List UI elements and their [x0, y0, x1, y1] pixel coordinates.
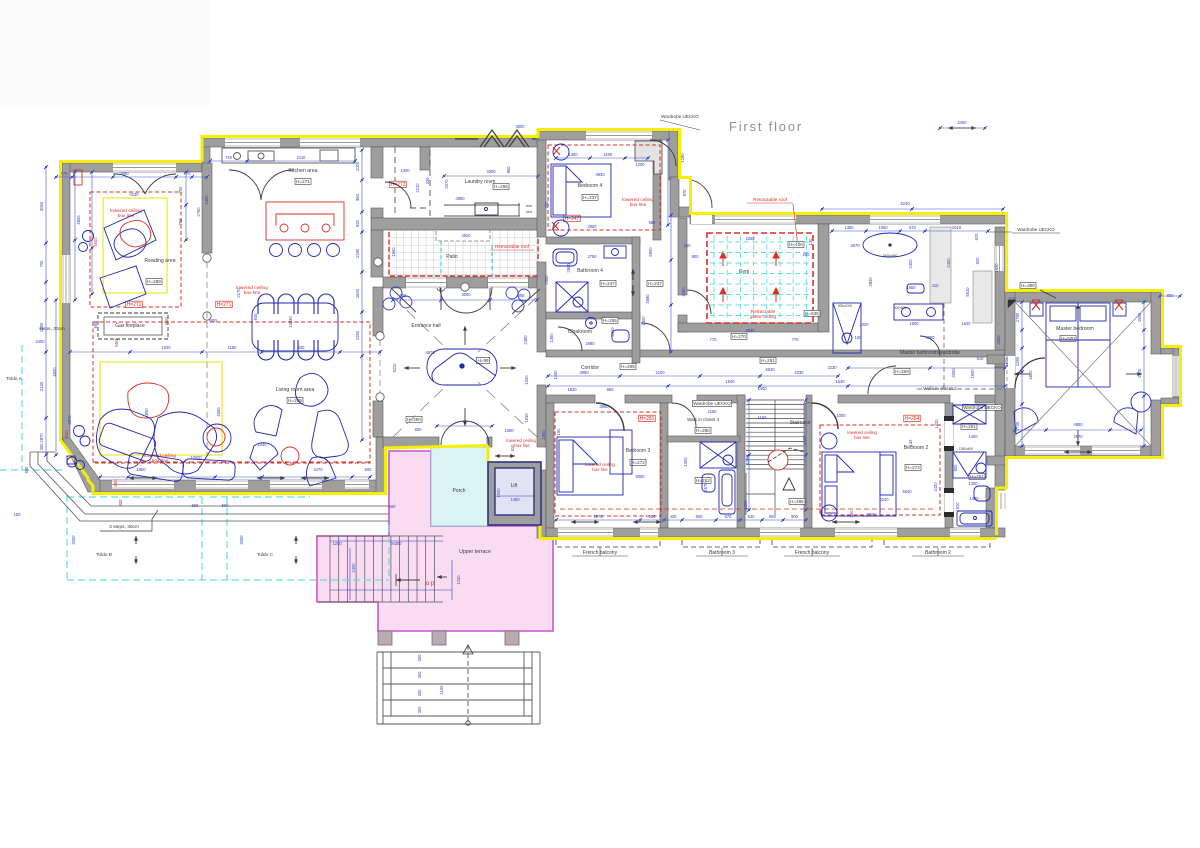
svg-text:box line: box line	[244, 290, 261, 296]
svg-text:3000: 3000	[71, 535, 76, 545]
svg-text:4000: 4000	[681, 287, 686, 297]
svg-text:H=95: H=95	[477, 358, 489, 363]
svg-text:900: 900	[696, 514, 704, 519]
svg-text:box line: box line	[152, 458, 169, 464]
svg-text:3000: 3000	[866, 512, 876, 517]
svg-text:1300: 1300	[400, 168, 410, 173]
svg-text:H=237: H=237	[583, 195, 597, 200]
svg-text:4540: 4540	[745, 328, 755, 333]
svg-text:2020: 2020	[859, 322, 869, 327]
svg-text:670: 670	[909, 225, 917, 230]
svg-text:2010: 2010	[952, 225, 962, 230]
svg-text:2070: 2070	[444, 179, 449, 189]
svg-text:1380: 1380	[39, 322, 44, 332]
svg-text:1600: 1600	[541, 430, 546, 440]
svg-text:640: 640	[748, 514, 756, 519]
svg-text:900: 900	[209, 318, 217, 323]
svg-text:1060: 1060	[878, 225, 888, 230]
svg-text:1350: 1350	[844, 225, 854, 230]
svg-text:H=271: H=271	[296, 179, 310, 184]
svg-text:1400: 1400	[641, 316, 646, 326]
svg-text:1000: 1000	[504, 428, 514, 433]
svg-text:H=400: H=400	[789, 242, 803, 247]
svg-text:1480: 1480	[603, 152, 613, 157]
svg-text:4550: 4550	[216, 407, 221, 417]
svg-text:4920: 4920	[461, 233, 471, 238]
svg-text:1460: 1460	[553, 370, 558, 380]
svg-text:3930: 3930	[595, 172, 605, 177]
svg-text:660: 660	[93, 321, 98, 329]
svg-text:4230: 4230	[129, 192, 139, 197]
svg-text:1350x400: 1350x400	[959, 447, 973, 451]
svg-text:Toldo C: Toldo C	[257, 552, 274, 558]
svg-text:H=270: H=270	[732, 334, 746, 339]
svg-text:1840: 1840	[355, 288, 360, 298]
svg-text:1500: 1500	[1004, 357, 1009, 367]
svg-text:H=289: H=289	[147, 279, 161, 284]
svg-text:1000: 1000	[743, 500, 748, 510]
svg-text:10930: 10930	[288, 316, 293, 328]
svg-text:840: 840	[253, 313, 258, 321]
svg-text:2950: 2950	[566, 263, 571, 273]
svg-text:500: 500	[24, 466, 29, 474]
svg-text:330: 330	[425, 177, 430, 185]
svg-text:650: 650	[164, 317, 169, 325]
svg-text:4240: 4240	[879, 497, 889, 502]
svg-text:610: 610	[977, 356, 985, 361]
svg-text:Wordrobe UECKO: Wordrobe UECKO	[661, 114, 699, 119]
svg-text:500: 500	[389, 504, 397, 509]
svg-text:Toldo B: Toldo B	[96, 552, 112, 558]
svg-text:610: 610	[1009, 296, 1017, 301]
svg-text:2480: 2480	[523, 335, 528, 345]
svg-text:900: 900	[692, 254, 700, 259]
svg-text:1650: 1650	[1137, 312, 1142, 322]
svg-text:610: 610	[510, 444, 515, 452]
svg-text:H=271: H=271	[217, 302, 232, 308]
svg-text:H=265: H=265	[621, 364, 635, 369]
svg-text:2550: 2550	[544, 275, 549, 285]
svg-text:Bedroom 3: Bedroom 3	[626, 448, 651, 454]
svg-text:2970: 2970	[1073, 434, 1083, 439]
svg-text:1630: 1630	[524, 413, 529, 423]
svg-text:1280: 1280	[1015, 356, 1020, 366]
svg-text:900x1000: 900x1000	[838, 304, 852, 308]
svg-text:2850: 2850	[136, 467, 146, 472]
svg-text:2230: 2230	[257, 442, 267, 447]
svg-text:2970: 2970	[593, 514, 603, 519]
svg-text:Gas fireplace: Gas fireplace	[115, 323, 145, 329]
svg-text:Toldo A: Toldo A	[6, 376, 23, 382]
svg-text:Master bathroom/wardrobe: Master bathroom/wardrobe	[900, 350, 960, 356]
svg-text:2170: 2170	[236, 288, 241, 298]
svg-text:Wardrobe UECKO: Wardrobe UECKO	[693, 401, 731, 406]
svg-text:150: 150	[684, 243, 692, 248]
svg-text:250: 250	[849, 510, 854, 518]
svg-text:300: 300	[417, 654, 422, 662]
svg-text:H=251: H=251	[962, 424, 976, 429]
svg-text:Master bedroom: Master bedroom	[1056, 326, 1094, 332]
svg-text:1650: 1650	[906, 285, 916, 290]
svg-text:950: 950	[355, 193, 360, 201]
svg-text:160: 160	[855, 335, 863, 340]
svg-text:340: 340	[298, 345, 306, 350]
svg-text:3000: 3000	[239, 535, 244, 545]
svg-text:3070: 3070	[850, 243, 860, 248]
svg-text:1200: 1200	[456, 575, 461, 585]
svg-text:300: 300	[417, 706, 422, 714]
svg-text:Retractable roof: Retractable roof	[495, 244, 530, 250]
svg-text:5640: 5640	[902, 489, 912, 494]
svg-text:1300: 1300	[683, 457, 688, 467]
svg-text:H=272: H=272	[906, 465, 920, 470]
svg-text:2670: 2670	[703, 482, 708, 492]
svg-text:H=247: H=247	[601, 281, 615, 286]
svg-text:650: 650	[114, 339, 119, 347]
svg-text:Patio: Patio	[446, 254, 458, 260]
svg-text:2400: 2400	[35, 339, 45, 344]
svg-text:500: 500	[192, 503, 200, 508]
svg-text:1350: 1350	[568, 152, 578, 157]
svg-text:Retractable roof: Retractable roof	[753, 197, 788, 203]
svg-text:H=272: H=272	[631, 460, 645, 465]
svg-text:670: 670	[725, 514, 733, 519]
svg-text:3580: 3580	[645, 294, 650, 304]
svg-text:1540: 1540	[835, 379, 845, 384]
svg-text:1000: 1000	[836, 413, 846, 418]
svg-text:box line: box line	[854, 435, 870, 440]
svg-text:300: 300	[39, 443, 44, 451]
svg-text:Laundry room: Laundry room	[465, 179, 496, 185]
svg-text:4600: 4600	[93, 237, 98, 247]
svg-text:box line: box line	[514, 443, 530, 448]
svg-text:900: 900	[791, 514, 799, 519]
svg-text:300: 300	[118, 499, 123, 507]
svg-text:H=350: H=350	[1021, 283, 1035, 288]
svg-text:300: 300	[417, 689, 422, 697]
svg-text:1290: 1290	[355, 248, 360, 258]
svg-text:5240: 5240	[900, 201, 910, 206]
svg-text:2250: 2250	[355, 330, 360, 340]
svg-text:H=284: H=284	[905, 416, 920, 422]
svg-text:2230: 2230	[794, 370, 804, 375]
svg-text:wm: wm	[526, 203, 533, 208]
svg-text:3000: 3000	[951, 368, 956, 378]
svg-text:2210: 2210	[415, 183, 420, 193]
svg-text:dm: dm	[526, 209, 532, 214]
svg-text:1360: 1360	[549, 333, 554, 343]
svg-text:260: 260	[544, 201, 549, 209]
svg-text:950: 950	[607, 387, 615, 392]
svg-text:2150: 2150	[707, 409, 717, 414]
svg-text:2420: 2420	[933, 482, 938, 492]
svg-text:820: 820	[415, 427, 423, 432]
svg-text:H=280: H=280	[696, 428, 710, 433]
svg-text:700: 700	[39, 260, 44, 268]
svg-text:10600: 10600	[190, 455, 202, 460]
svg-text:o p: o p	[426, 581, 435, 587]
svg-text:2970: 2970	[67, 415, 72, 425]
svg-text:1300: 1300	[968, 481, 978, 486]
svg-text:H=495: H=495	[790, 499, 804, 504]
svg-text:Porch: Porch	[452, 488, 465, 494]
svg-text:2950: 2950	[587, 224, 597, 229]
svg-text:800: 800	[64, 430, 69, 438]
svg-text:1520: 1520	[567, 387, 577, 392]
svg-text:3930: 3930	[868, 277, 873, 287]
svg-text:1560: 1560	[391, 247, 396, 257]
svg-text:600x400: 600x400	[894, 306, 906, 310]
svg-text:130: 130	[808, 238, 813, 246]
svg-text:H=269: H=269	[895, 369, 909, 374]
svg-text:4800: 4800	[52, 367, 57, 377]
svg-text:2400: 2400	[351, 563, 356, 573]
svg-text:6900: 6900	[648, 247, 653, 257]
svg-text:2230: 2230	[827, 365, 837, 370]
svg-text:1000: 1000	[524, 375, 529, 385]
svg-text:740: 740	[225, 155, 233, 160]
svg-text:860: 860	[769, 514, 777, 519]
svg-text:500: 500	[222, 503, 230, 508]
svg-text:2110: 2110	[297, 155, 307, 160]
svg-text:box line: box line	[630, 202, 647, 208]
svg-text:930: 930	[355, 219, 360, 227]
svg-text:4260: 4260	[745, 236, 755, 241]
svg-text:3960: 3960	[599, 404, 609, 409]
svg-text:H=261: H=261	[761, 358, 775, 363]
svg-text:770: 770	[710, 337, 718, 342]
svg-text:960: 960	[506, 166, 511, 174]
svg-text:620: 620	[974, 233, 979, 241]
svg-text:1400: 1400	[969, 496, 979, 501]
svg-text:900: 900	[953, 464, 958, 472]
svg-text:4970: 4970	[425, 350, 435, 355]
svg-text:985: 985	[518, 293, 526, 298]
svg-text:2760: 2760	[196, 207, 201, 217]
svg-text:H=281: H=281	[640, 416, 655, 422]
svg-text:1790: 1790	[1015, 312, 1020, 322]
svg-text:3400: 3400	[204, 195, 209, 205]
svg-text:550: 550	[649, 514, 657, 519]
svg-text:Upper terrace: Upper terrace	[459, 549, 491, 555]
svg-text:1290: 1290	[680, 153, 685, 163]
svg-text:Kitchen area: Kitchen area	[288, 168, 317, 174]
svg-text:3500: 3500	[515, 124, 525, 129]
svg-text:H=255: H=255	[494, 184, 508, 189]
svg-text:430: 430	[670, 514, 678, 519]
svg-text:1150: 1150	[758, 415, 768, 420]
svg-text:4980: 4980	[455, 196, 465, 201]
svg-text:5110: 5110	[392, 363, 397, 373]
svg-text:4880: 4880	[1073, 422, 1083, 427]
svg-text:1500: 1500	[1137, 368, 1142, 378]
svg-text:1540: 1540	[725, 379, 735, 384]
svg-text:2450: 2450	[946, 258, 951, 268]
svg-text:2750: 2750	[587, 254, 597, 259]
svg-text:H=255: H=255	[603, 318, 617, 323]
svg-text:1200: 1200	[332, 541, 342, 546]
svg-text:1000: 1000	[355, 161, 360, 171]
svg-text:2130: 2130	[39, 381, 44, 391]
svg-text:1460: 1460	[510, 497, 520, 502]
svg-text:300: 300	[417, 671, 422, 679]
svg-text:3000: 3000	[996, 335, 1001, 345]
svg-text:Wardrobe UECKO: Wardrobe UECKO	[1017, 227, 1055, 232]
svg-text:First floor: First floor	[729, 119, 803, 134]
svg-text:142: 142	[908, 439, 913, 447]
svg-text:2970: 2970	[39, 433, 44, 443]
svg-text:H=271: H=271	[127, 302, 142, 308]
svg-text:150: 150	[556, 428, 561, 436]
svg-text:4470: 4470	[313, 467, 323, 472]
svg-text:1200: 1200	[635, 162, 645, 167]
svg-text:985: 985	[400, 293, 408, 298]
svg-text:770: 770	[61, 171, 69, 176]
svg-text:box line: box line	[592, 467, 608, 472]
svg-text:H=252: H=252	[696, 478, 710, 483]
svg-text:6040: 6040	[765, 367, 775, 372]
svg-text:1520: 1520	[955, 502, 960, 512]
svg-text:6060: 6060	[635, 474, 645, 479]
svg-text:2400: 2400	[957, 120, 967, 125]
svg-text:3 steps, 30cm: 3 steps, 30cm	[109, 524, 139, 530]
svg-text:Bedroom 4: Bedroom 4	[578, 183, 603, 189]
svg-text:Lift: Lift	[511, 483, 518, 489]
svg-text:5610: 5610	[965, 287, 970, 297]
svg-text:3350: 3350	[486, 169, 496, 174]
svg-text:1150: 1150	[228, 345, 238, 350]
svg-text:1400: 1400	[968, 434, 978, 439]
svg-text:150: 150	[14, 512, 22, 517]
svg-text:980: 980	[649, 220, 657, 225]
svg-text:4100: 4100	[802, 435, 807, 445]
svg-text:9x300: 9x300	[390, 541, 402, 546]
svg-text:3960: 3960	[579, 370, 589, 375]
svg-text:4380: 4380	[745, 455, 750, 465]
svg-text:760: 760	[178, 186, 183, 194]
svg-text:Walk in closet 3: Walk in closet 3	[687, 417, 719, 422]
svg-text:770: 770	[792, 337, 800, 342]
svg-text:2100: 2100	[655, 370, 665, 375]
svg-text:970: 970	[682, 189, 687, 197]
svg-text:Cloakroom: Cloakroom	[568, 329, 592, 335]
svg-text:1420: 1420	[934, 419, 939, 429]
svg-text:4800: 4800	[144, 408, 149, 418]
svg-text:800: 800	[1167, 293, 1175, 298]
svg-text:1800x850: 1800x850	[883, 254, 898, 258]
svg-text:H=247: H=247	[648, 281, 662, 286]
svg-text:Bathroom 4: Bathroom 4	[577, 268, 603, 274]
svg-text:5400: 5400	[610, 327, 615, 337]
svg-text:4800: 4800	[76, 215, 81, 225]
svg-text:4800: 4800	[1028, 370, 1033, 380]
svg-text:2680: 2680	[585, 341, 595, 346]
svg-text:Entrance hall: Entrance hall	[411, 323, 440, 329]
svg-text:1930: 1930	[161, 345, 171, 350]
svg-text:1100: 1100	[439, 685, 444, 695]
svg-text:760: 760	[178, 218, 183, 226]
svg-text:2400: 2400	[908, 259, 913, 269]
svg-text:200: 200	[803, 252, 811, 257]
svg-text:Reading area: Reading area	[144, 258, 175, 264]
svg-text:500: 500	[365, 467, 373, 472]
svg-text:620: 620	[975, 257, 980, 265]
svg-text:2690: 2690	[119, 171, 129, 176]
svg-text:4080: 4080	[925, 335, 935, 340]
svg-text:410: 410	[932, 283, 940, 288]
svg-text:1500: 1500	[970, 369, 975, 379]
svg-text:1620: 1620	[961, 321, 971, 326]
svg-text:3060: 3060	[39, 201, 44, 211]
svg-text:3000: 3000	[461, 292, 471, 297]
svg-text:1620: 1620	[994, 263, 999, 273]
svg-text:1600: 1600	[909, 321, 919, 326]
svg-text:450: 450	[113, 479, 118, 487]
